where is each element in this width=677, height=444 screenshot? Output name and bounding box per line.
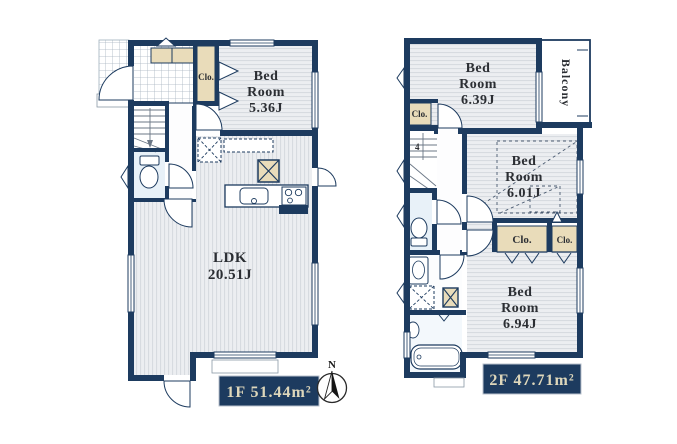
- stove: [282, 187, 306, 205]
- bay-window-stairs-2f: [397, 160, 404, 182]
- area-label-1f: 1F 51.44m²: [219, 376, 319, 406]
- bedroom-1f-size: 5.36J: [249, 101, 283, 116]
- toilet-fixture-2f: [411, 218, 427, 246]
- closet-mid-label-2f: Clo.: [512, 234, 532, 246]
- compass: N: [318, 359, 347, 403]
- bedroom-door-arc-1f: [196, 104, 222, 130]
- bedroom-1f-line1: Bed: [254, 69, 279, 84]
- balcony-label: Balcony: [559, 59, 573, 107]
- ldk-size: 20.51J: [208, 267, 252, 283]
- bay-window-bedroom-2f: [397, 68, 404, 88]
- bedroom-bottom-line1: Bed: [508, 285, 533, 300]
- bedroom-top-line2: Room: [459, 77, 497, 92]
- terrace-step: [212, 360, 278, 373]
- area-label-2f: 2F 47.71m²: [483, 364, 581, 394]
- bedroom-bottom-line2: Room: [501, 301, 539, 316]
- hall-floor-2f: [437, 128, 462, 252]
- exterior-step-2f: [434, 378, 464, 387]
- bay-window-washroom-2f: [397, 283, 404, 303]
- bedroom-1f-line2: Room: [247, 85, 285, 100]
- bedroom-mid-line1: Bed: [512, 154, 537, 169]
- compass-north-label: N: [328, 359, 336, 371]
- closet-label-1f: Clo.: [198, 72, 214, 82]
- ldk-label: LDK 20.51J: [208, 250, 252, 283]
- floorplan-drawing: Clo. Bed Room 5.36J LDK 20.51J 1F 51.44m…: [0, 0, 677, 444]
- bedroom-top-size: 6.39J: [461, 93, 495, 108]
- stair-count-2f: 4: [415, 142, 420, 152]
- bay-window-toilet-2f: [397, 205, 404, 227]
- floorplan-canvas: Clo. Bed Room 5.36J LDK 20.51J 1F 51.44m…: [0, 0, 677, 444]
- side-door-arc: [164, 381, 190, 407]
- floor1-plan: Clo. Bed Room 5.36J LDK 20.51J 1F 51.44m…: [97, 38, 336, 407]
- closet-hall-label-2f: Clo.: [412, 109, 428, 119]
- closet-right-label-2f: Clo.: [557, 235, 573, 245]
- area-text-1f: 1F 51.44m²: [226, 384, 311, 401]
- bay-window-toilet-1f: [121, 166, 128, 188]
- back-door-arc: [318, 168, 336, 186]
- bedroom-mid-line2: Room: [505, 170, 543, 185]
- ldk-line1: LDK: [213, 250, 247, 266]
- bedroom-bottom-size: 6.94J: [503, 317, 537, 332]
- counter-dashed: [224, 139, 273, 152]
- bedroom-mid-size: 6.01J: [507, 186, 541, 201]
- floor2-plan: 4: [397, 38, 592, 394]
- area-text-2f: 2F 47.71m²: [489, 372, 574, 389]
- bedroom-top-line1: Bed: [466, 61, 491, 76]
- counter-end-wall: [279, 205, 308, 214]
- kitchen-sink: [240, 188, 268, 204]
- toilet-fixture-1f: [140, 156, 159, 188]
